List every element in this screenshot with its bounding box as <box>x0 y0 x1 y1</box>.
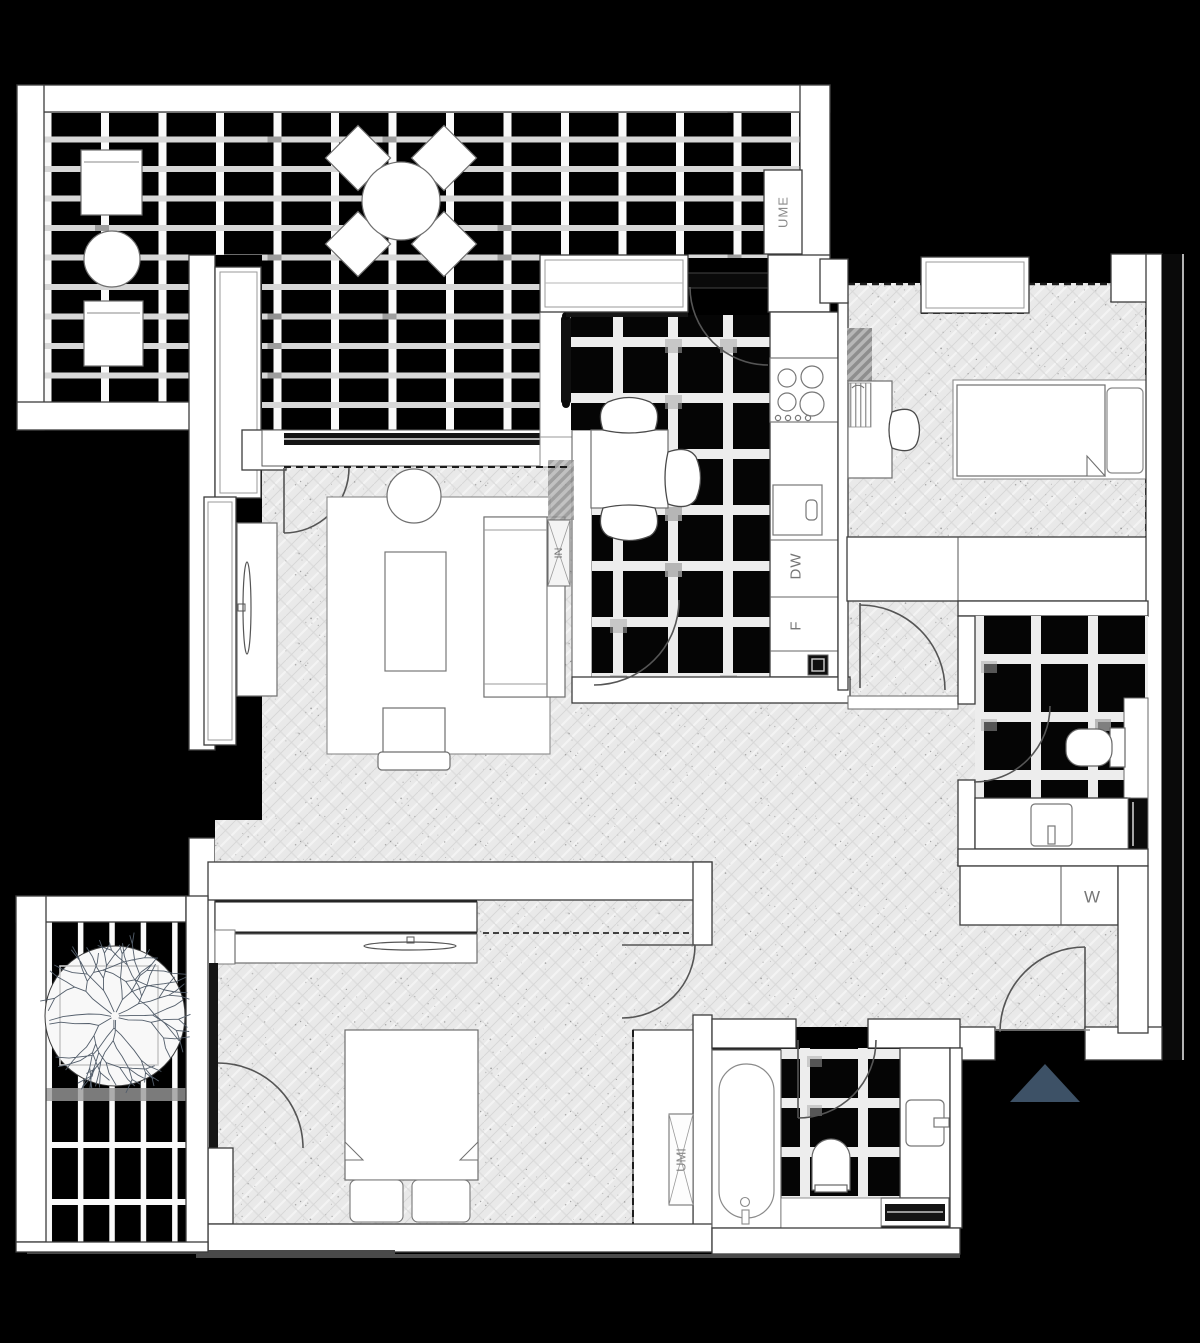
svg-text:IN: IN <box>553 547 565 558</box>
svg-text:UME: UME <box>776 196 791 228</box>
svg-text:W: W <box>1084 888 1100 907</box>
svg-text:DW: DW <box>788 553 805 580</box>
svg-text:F: F <box>788 621 805 630</box>
svg-text:UMI: UMI <box>674 1148 689 1172</box>
